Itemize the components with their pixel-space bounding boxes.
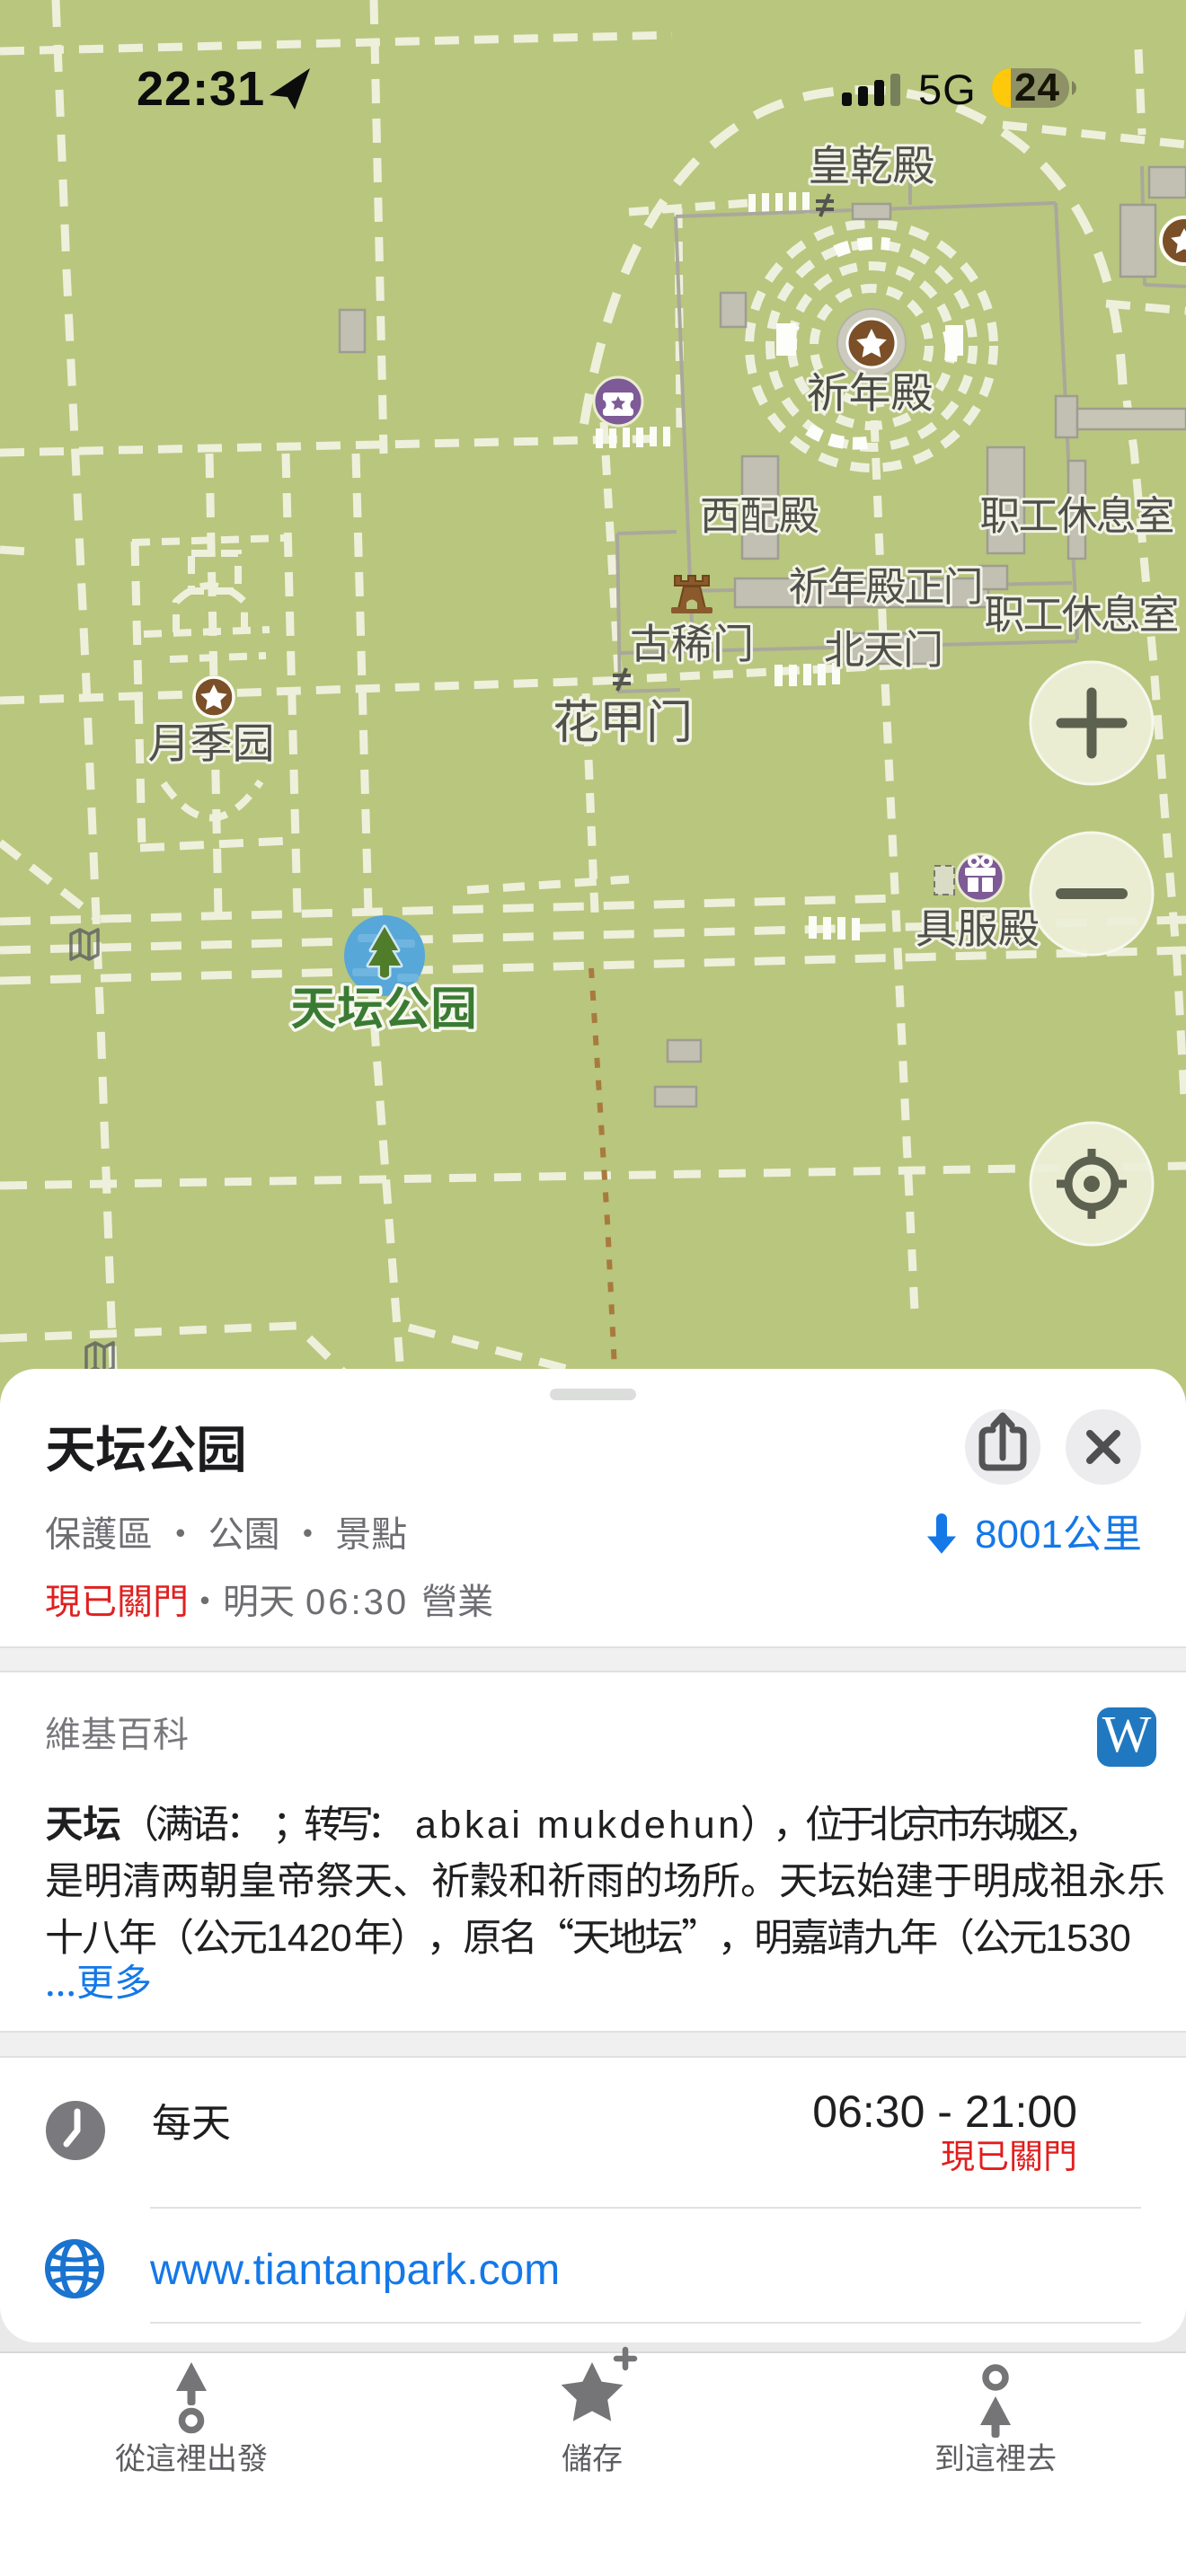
svg-text:abkai mukdehun: abkai mukdehun [415, 1804, 743, 1847]
svg-text:06:30 - 21:00: 06:30 - 21:00 [812, 2086, 1077, 2137]
svg-text:W: W [1102, 1705, 1152, 1763]
svg-text:24: 24 [1014, 66, 1060, 110]
svg-text:22:31: 22:31 [137, 62, 265, 116]
svg-text:1420: 1420 [266, 1917, 352, 1960]
svg-text:8001: 8001 [975, 1513, 1063, 1557]
svg-text:www.tiantanpark.com: www.tiantanpark.com [149, 2246, 560, 2294]
svg-text:06:30: 06:30 [305, 1583, 409, 1622]
svg-text:1530: 1530 [1045, 1917, 1131, 1960]
svg-text:5G: 5G [918, 66, 977, 113]
